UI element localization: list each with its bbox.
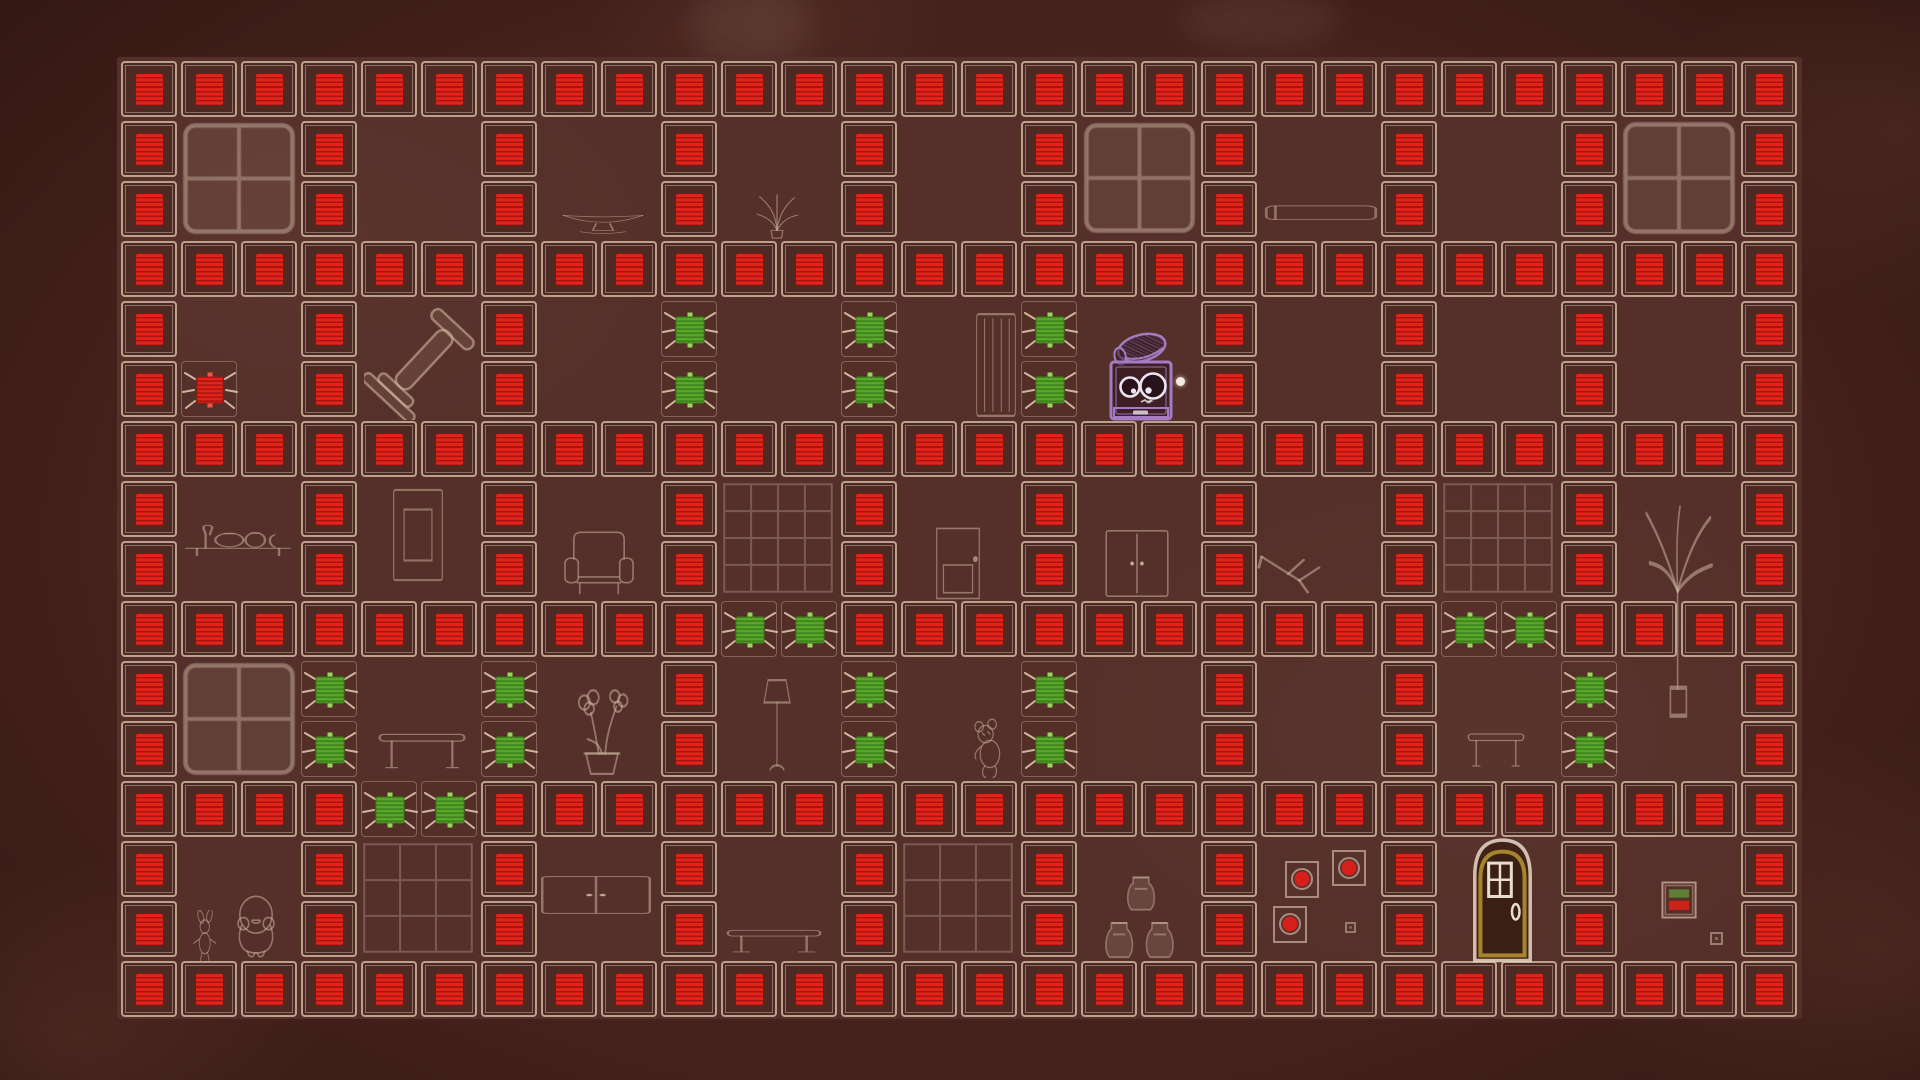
wall-block — [721, 421, 777, 477]
red-block — [316, 974, 343, 1005]
wall-block — [1561, 121, 1617, 177]
red-block — [856, 554, 883, 585]
wall-block — [601, 421, 657, 477]
red-block — [256, 974, 283, 1005]
red-block — [1216, 734, 1243, 765]
red-block — [496, 194, 523, 225]
red-block — [256, 74, 283, 105]
red-block — [376, 614, 403, 645]
wall-block — [1141, 781, 1197, 837]
red-block — [1036, 434, 1063, 465]
wall-block — [1741, 301, 1797, 357]
red-block — [1216, 854, 1243, 885]
red-block — [556, 614, 583, 645]
red-block — [436, 434, 463, 465]
red-block — [1756, 74, 1783, 105]
cursor-dot — [1176, 377, 1185, 386]
wall-block — [1621, 421, 1677, 477]
wall-block — [481, 61, 537, 117]
wall-block — [1741, 781, 1797, 837]
red-block — [1576, 434, 1603, 465]
red-block — [256, 614, 283, 645]
wall-block — [841, 241, 897, 297]
red-block — [316, 134, 343, 165]
red-block — [196, 974, 223, 1005]
wall-block — [661, 781, 717, 837]
red-block — [676, 554, 703, 585]
wall-block — [1021, 841, 1077, 897]
red-block — [136, 854, 163, 885]
red-block — [1036, 194, 1063, 225]
red-block — [856, 74, 883, 105]
red-block — [496, 614, 523, 645]
wall-block — [241, 421, 297, 477]
red-block — [1756, 254, 1783, 285]
wall-block — [301, 301, 357, 357]
wall-block — [1381, 61, 1437, 117]
red-block — [1096, 614, 1123, 645]
red-block — [196, 434, 223, 465]
red-block — [1576, 854, 1603, 885]
red-block — [316, 74, 343, 105]
red-block — [1036, 914, 1063, 945]
red-block — [136, 674, 163, 705]
wall-block — [1081, 781, 1137, 837]
wall-block — [841, 901, 897, 957]
red-block — [1276, 434, 1303, 465]
red-block — [676, 434, 703, 465]
wall-block — [1201, 481, 1257, 537]
wall-block — [661, 841, 717, 897]
red-block — [616, 614, 643, 645]
red-block — [856, 254, 883, 285]
green-gem — [1501, 601, 1557, 657]
wall-block — [1681, 781, 1737, 837]
red-block — [796, 974, 823, 1005]
red-block — [136, 614, 163, 645]
wall-block — [1381, 901, 1437, 957]
wall-block — [301, 781, 357, 837]
red-block — [1396, 794, 1423, 825]
wall-block — [1561, 901, 1617, 957]
red-block — [1096, 794, 1123, 825]
red-block — [1456, 794, 1483, 825]
red-block — [436, 254, 463, 285]
wall-block — [301, 901, 357, 957]
red-block — [496, 974, 523, 1005]
red-block — [736, 254, 763, 285]
red-block — [856, 914, 883, 945]
game-screen — [0, 0, 1920, 1080]
red-block — [1636, 74, 1663, 105]
player-robot[interactable] — [1108, 330, 1174, 422]
wall-block — [1621, 241, 1677, 297]
red-block — [676, 734, 703, 765]
red-block — [496, 134, 523, 165]
wall-block — [1681, 61, 1737, 117]
wall-block — [1381, 301, 1437, 357]
red-block — [676, 974, 703, 1005]
wall-block — [1741, 241, 1797, 297]
red-block — [1396, 374, 1423, 405]
wall-block — [1201, 841, 1257, 897]
red-block — [916, 254, 943, 285]
wall-block — [1501, 421, 1557, 477]
red-block — [316, 254, 343, 285]
wall-block — [301, 121, 357, 177]
red-block — [976, 974, 1003, 1005]
red-block — [796, 254, 823, 285]
wall-block — [1201, 181, 1257, 237]
red-block — [1216, 194, 1243, 225]
red-block — [136, 314, 163, 345]
green-gem — [661, 301, 717, 357]
wall-block — [181, 961, 237, 1017]
wall-block — [1741, 541, 1797, 597]
wall-block — [1321, 421, 1377, 477]
wall-block — [1741, 121, 1797, 177]
red-block — [1336, 794, 1363, 825]
red-block — [676, 134, 703, 165]
red-block — [316, 854, 343, 885]
wall-block — [1021, 61, 1077, 117]
red-block — [1036, 794, 1063, 825]
wall-block — [781, 961, 837, 1017]
wall-block — [241, 781, 297, 837]
red-block — [136, 794, 163, 825]
wall-block — [1441, 241, 1497, 297]
wall-block — [1381, 361, 1437, 417]
wall-block — [1381, 121, 1437, 177]
wall-block — [601, 61, 657, 117]
red-block — [1756, 194, 1783, 225]
wall-block — [481, 841, 537, 897]
wall-block — [541, 961, 597, 1017]
red-block — [376, 74, 403, 105]
wall-block — [121, 781, 177, 837]
wall-block — [841, 601, 897, 657]
red-block — [856, 134, 883, 165]
wall-block — [1381, 541, 1437, 597]
wall-block — [1441, 61, 1497, 117]
red-block — [916, 794, 943, 825]
red-block — [376, 434, 403, 465]
wall-block — [421, 961, 477, 1017]
red-block — [316, 494, 343, 525]
wall-block — [1741, 901, 1797, 957]
red-block — [136, 554, 163, 585]
wall-block — [1201, 781, 1257, 837]
wall-block — [1021, 181, 1077, 237]
red-block — [1336, 434, 1363, 465]
wall-block — [1381, 481, 1437, 537]
green-gem — [1441, 601, 1497, 657]
wall-block — [1741, 61, 1797, 117]
wall-block — [421, 61, 477, 117]
wall-block — [301, 181, 357, 237]
red-block — [1576, 494, 1603, 525]
wall-block — [841, 481, 897, 537]
red-block — [1756, 974, 1783, 1005]
red-block — [1216, 374, 1243, 405]
red-block — [1276, 614, 1303, 645]
red-block — [736, 434, 763, 465]
wall-block — [1561, 61, 1617, 117]
wall-block — [1021, 541, 1077, 597]
red-block — [316, 374, 343, 405]
red-block — [1036, 254, 1063, 285]
red-block — [196, 254, 223, 285]
red-block — [616, 434, 643, 465]
red-block — [256, 254, 283, 285]
wall-block — [481, 781, 537, 837]
red-block — [676, 674, 703, 705]
green-gem — [301, 721, 357, 777]
wall-block — [901, 421, 957, 477]
red-block — [1576, 74, 1603, 105]
wall-block — [661, 961, 717, 1017]
wall-block — [1201, 421, 1257, 477]
red-block — [136, 734, 163, 765]
wall-block — [181, 421, 237, 477]
red-block — [676, 914, 703, 945]
wall-block — [241, 961, 297, 1017]
wall-block — [481, 961, 537, 1017]
red-block — [436, 974, 463, 1005]
wall-block — [961, 241, 1017, 297]
red-block — [1216, 494, 1243, 525]
wall-block — [1621, 61, 1677, 117]
wall-block — [721, 781, 777, 837]
wall-block — [181, 241, 237, 297]
red-block — [376, 254, 403, 285]
wall-block — [1201, 961, 1257, 1017]
red-block — [1456, 434, 1483, 465]
wall-block — [1561, 601, 1617, 657]
wall-block — [841, 61, 897, 117]
wall-block — [301, 361, 357, 417]
red-block — [1756, 554, 1783, 585]
wall-block — [361, 61, 417, 117]
red-block — [1576, 314, 1603, 345]
red-block — [1156, 254, 1183, 285]
red-block — [616, 794, 643, 825]
wall-block — [121, 241, 177, 297]
wall-block — [1441, 961, 1497, 1017]
red-block — [1516, 794, 1543, 825]
red-block — [1756, 374, 1783, 405]
wall-block — [1261, 961, 1317, 1017]
wall-block — [961, 961, 1017, 1017]
red-block — [1396, 854, 1423, 885]
wall-block — [1381, 961, 1437, 1017]
wall-block — [781, 781, 837, 837]
red-block — [496, 554, 523, 585]
wall-block — [841, 781, 897, 837]
wall-block — [601, 601, 657, 657]
wall-block — [421, 241, 477, 297]
wall-block — [781, 61, 837, 117]
red-block — [1456, 254, 1483, 285]
red-block — [736, 974, 763, 1005]
wall-block — [541, 241, 597, 297]
wall-block — [1201, 601, 1257, 657]
red-block — [436, 614, 463, 645]
red-block — [496, 254, 523, 285]
wall-block — [601, 241, 657, 297]
red-block — [1036, 974, 1063, 1005]
wall-block — [1141, 961, 1197, 1017]
wall-block — [301, 601, 357, 657]
wall-block — [421, 421, 477, 477]
red-block — [556, 74, 583, 105]
red-block — [676, 614, 703, 645]
red-block — [1216, 434, 1243, 465]
green-gem — [481, 721, 537, 777]
green-gem — [1021, 301, 1077, 357]
wall-block — [181, 601, 237, 657]
wall-block — [1261, 241, 1317, 297]
wall-block — [661, 421, 717, 477]
wall-block — [301, 241, 357, 297]
wall-block — [1021, 421, 1077, 477]
wall-block — [541, 781, 597, 837]
red-block — [976, 434, 1003, 465]
red-block — [1336, 974, 1363, 1005]
wall-block — [1021, 481, 1077, 537]
red-block — [136, 914, 163, 945]
green-gem — [841, 721, 897, 777]
wall-block — [1621, 961, 1677, 1017]
wall-block — [661, 601, 717, 657]
wall-block — [1081, 601, 1137, 657]
wall-block — [1561, 841, 1617, 897]
wall-block — [901, 241, 957, 297]
wall-block — [1261, 61, 1317, 117]
red-block — [736, 794, 763, 825]
red-block — [1756, 914, 1783, 945]
wall-block — [661, 481, 717, 537]
red-block — [676, 794, 703, 825]
wall-block — [1561, 301, 1617, 357]
wall-block — [241, 61, 297, 117]
wall-block — [361, 421, 417, 477]
wall-block — [1021, 901, 1077, 957]
red-block — [1396, 494, 1423, 525]
green-gem — [481, 661, 537, 717]
red-block — [556, 254, 583, 285]
red-block — [256, 434, 283, 465]
red-block — [1216, 314, 1243, 345]
red-block — [1756, 794, 1783, 825]
red-block — [1576, 914, 1603, 945]
red-block — [1036, 134, 1063, 165]
red-block — [1636, 614, 1663, 645]
green-gem — [1561, 661, 1617, 717]
red-block — [796, 434, 823, 465]
wall-block — [661, 901, 717, 957]
red-block — [1576, 254, 1603, 285]
red-block — [136, 974, 163, 1005]
wall-block — [541, 421, 597, 477]
wall-block — [1561, 241, 1617, 297]
wall-block — [661, 61, 717, 117]
red-block — [1276, 974, 1303, 1005]
wall-block — [1741, 181, 1797, 237]
wall-block — [421, 601, 477, 657]
red-block — [1396, 134, 1423, 165]
wall-block — [1321, 61, 1377, 117]
green-gem — [421, 781, 477, 837]
red-block — [1396, 674, 1423, 705]
red-block — [1396, 74, 1423, 105]
wall-block — [481, 301, 537, 357]
red-block — [496, 794, 523, 825]
wall-block — [1561, 421, 1617, 477]
red-block — [916, 614, 943, 645]
red-block — [1036, 854, 1063, 885]
red-block — [1756, 494, 1783, 525]
wall-block — [1201, 301, 1257, 357]
wall-block — [1681, 961, 1737, 1017]
wall-block — [1021, 241, 1077, 297]
red-block — [196, 74, 223, 105]
red-block — [1756, 734, 1783, 765]
wall-block — [1381, 841, 1437, 897]
wall-block — [1741, 961, 1797, 1017]
green-gem — [841, 301, 897, 357]
red-block — [1516, 74, 1543, 105]
red-block — [1516, 974, 1543, 1005]
wall-block — [121, 841, 177, 897]
wall-block — [661, 541, 717, 597]
red-block — [856, 434, 883, 465]
wall-block — [541, 61, 597, 117]
red-block — [1156, 614, 1183, 645]
red-block — [1396, 914, 1423, 945]
wall-block — [901, 961, 957, 1017]
wall-block — [1141, 421, 1197, 477]
red-block — [1576, 134, 1603, 165]
wall-block — [1561, 181, 1617, 237]
wall-block — [721, 61, 777, 117]
wall-block — [1021, 781, 1077, 837]
wall-block — [781, 241, 837, 297]
wall-block — [841, 421, 897, 477]
red-block — [1096, 434, 1123, 465]
wall-block — [1021, 121, 1077, 177]
wall-block — [121, 301, 177, 357]
wall-block — [1501, 961, 1557, 1017]
wall-block — [1021, 961, 1077, 1017]
wall-block — [481, 601, 537, 657]
wall-block — [301, 841, 357, 897]
wall-block — [181, 61, 237, 117]
playfield-background — [117, 57, 1802, 1019]
wall-block — [121, 901, 177, 957]
red-block — [1456, 74, 1483, 105]
red-block — [1696, 434, 1723, 465]
wall-block — [121, 661, 177, 717]
wall-block — [121, 601, 177, 657]
wall-block — [1081, 421, 1137, 477]
wall-block — [1681, 241, 1737, 297]
red-block — [616, 74, 643, 105]
red-block — [136, 434, 163, 465]
red-block — [676, 854, 703, 885]
wall-block — [121, 121, 177, 177]
wall-block — [481, 421, 537, 477]
